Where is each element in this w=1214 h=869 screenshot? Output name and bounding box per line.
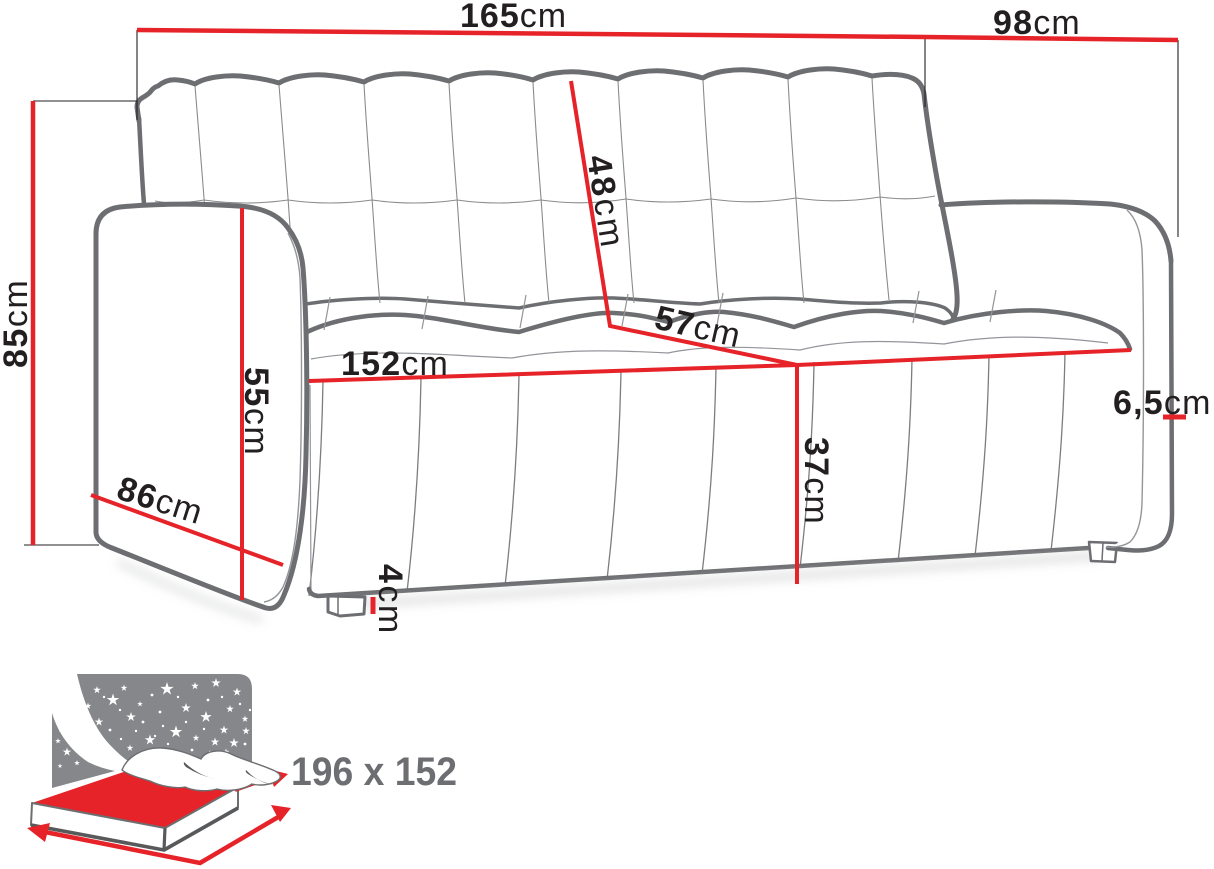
svg-text:165cm: 165cm [460, 0, 567, 35]
svg-text:55cm: 55cm [237, 367, 275, 456]
svg-text:85cm: 85cm [0, 279, 35, 368]
svg-text:152cm: 152cm [341, 345, 449, 383]
svg-text:37cm: 37cm [797, 437, 835, 525]
svg-text:4cm: 4cm [371, 564, 409, 636]
svg-text:6,5cm: 6,5cm [1113, 384, 1212, 422]
svg-text:98cm: 98cm [993, 4, 1081, 42]
svg-text:196 x 152: 196 x 152 [291, 750, 457, 794]
